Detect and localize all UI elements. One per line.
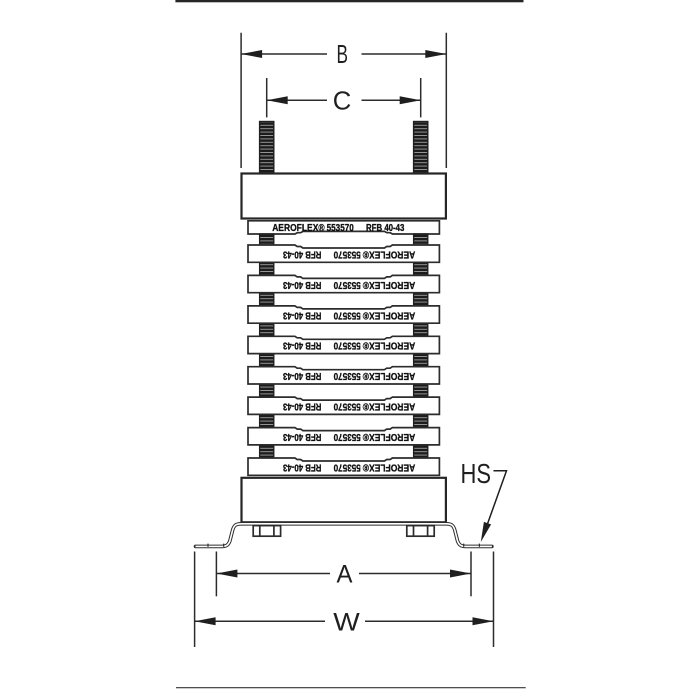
svg-text:RFB 40-43: RFB 40-43 — [366, 223, 405, 234]
svg-text:B: B — [337, 39, 349, 69]
svg-text:553570: 553570 — [333, 248, 361, 259]
svg-text:AEROFLEX®: AEROFLEX® — [362, 401, 415, 412]
svg-text:C: C — [333, 85, 352, 115]
svg-text:RFB 40-43: RFB 40-43 — [283, 370, 322, 381]
svg-text:AEROFLEX®: AEROFLEX® — [362, 462, 415, 473]
svg-text:553570: 553570 — [333, 309, 361, 320]
svg-text:AEROFLEX®: AEROFLEX® — [272, 223, 325, 234]
svg-text:HS: HS — [461, 458, 492, 489]
svg-text:AEROFLEX®: AEROFLEX® — [362, 431, 415, 442]
svg-text:553570: 553570 — [333, 462, 361, 473]
svg-text:RFB 40-43: RFB 40-43 — [283, 431, 322, 442]
svg-text:RFB 40-43: RFB 40-43 — [283, 401, 322, 412]
svg-text:AEROFLEX®: AEROFLEX® — [362, 370, 415, 381]
svg-text:RFB 40-43: RFB 40-43 — [283, 309, 322, 320]
svg-text:A: A — [337, 561, 353, 589]
svg-text:AEROFLEX®: AEROFLEX® — [362, 340, 415, 351]
svg-text:553570: 553570 — [333, 340, 361, 351]
svg-text:AEROFLEX®: AEROFLEX® — [362, 248, 415, 259]
svg-text:553570: 553570 — [333, 370, 361, 381]
svg-text:AEROFLEX®: AEROFLEX® — [362, 279, 415, 290]
svg-text:RFB 40-43: RFB 40-43 — [283, 248, 322, 259]
svg-text:RFB 40-43: RFB 40-43 — [283, 462, 322, 473]
svg-text:553570: 553570 — [333, 279, 361, 290]
svg-text:553570: 553570 — [333, 431, 361, 442]
svg-text:AEROFLEX®: AEROFLEX® — [362, 309, 415, 320]
svg-text:RFB 40-43: RFB 40-43 — [283, 279, 322, 290]
svg-text:RFB 40-43: RFB 40-43 — [283, 340, 322, 351]
svg-text:553570: 553570 — [327, 223, 355, 234]
svg-text:553570: 553570 — [333, 401, 361, 412]
svg-text:W: W — [333, 609, 360, 637]
